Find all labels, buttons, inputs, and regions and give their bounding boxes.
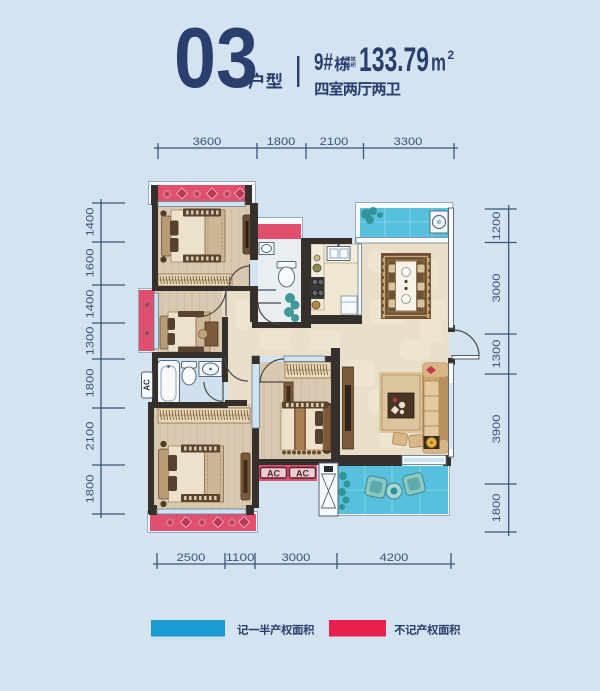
svg-text:2100: 2100 (320, 136, 349, 148)
svg-text:9#: 9# (314, 49, 333, 76)
svg-text:2500: 2500 (177, 552, 206, 564)
svg-text:4200: 4200 (380, 552, 409, 564)
svg-text:03: 03 (174, 11, 258, 106)
svg-text:3300: 3300 (394, 136, 423, 148)
svg-text:AC: AC (267, 469, 280, 479)
svg-text:3900: 3900 (491, 415, 503, 444)
svg-text:1800: 1800 (85, 369, 97, 398)
svg-text:133.79: 133.79 (359, 41, 429, 79)
svg-text:3000: 3000 (282, 552, 311, 564)
svg-text:1300: 1300 (491, 340, 503, 369)
svg-text:3000: 3000 (491, 274, 503, 303)
svg-text:2: 2 (448, 48, 455, 62)
svg-text:3600: 3600 (193, 136, 222, 148)
svg-text:1400: 1400 (85, 208, 97, 237)
svg-text:1100: 1100 (226, 552, 255, 564)
svg-text:1600: 1600 (85, 249, 97, 278)
svg-text:2100: 2100 (85, 422, 97, 451)
svg-text:1800: 1800 (85, 475, 97, 504)
svg-text:1800: 1800 (491, 494, 503, 523)
svg-text:AC: AC (296, 469, 309, 479)
svg-text:1200: 1200 (491, 212, 503, 241)
svg-text:1800: 1800 (267, 136, 296, 148)
svg-text:1300: 1300 (85, 327, 97, 356)
svg-text:1400: 1400 (85, 290, 97, 319)
svg-text:AC: AC (143, 379, 152, 391)
svg-text:m: m (431, 50, 446, 77)
